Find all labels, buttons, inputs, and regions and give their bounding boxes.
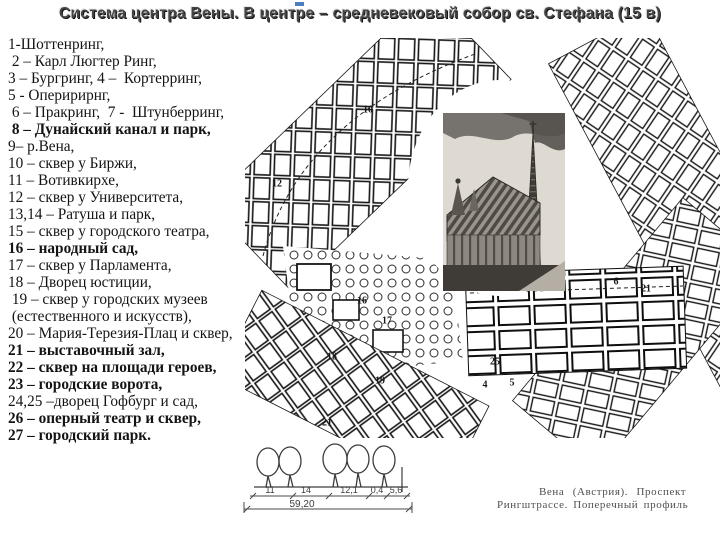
street-profile-diagram: 11 14 12,1 0,4 5,6 59,20 (230, 432, 475, 517)
legend-line: 12 – сквер у Университета, (8, 189, 233, 206)
legend-line: 11 – Вотивкирхе, (8, 172, 233, 189)
figure-caption: Вена (Австрия). Проспект Рингштрассе. По… (497, 486, 712, 512)
legend-line: 13,14 – Ратуша и парк, (8, 206, 233, 223)
legend-line: 3 – Бургринг, 4 – Кортерринг, (8, 70, 233, 87)
legend-line: 1-Шоттенринг, (8, 36, 233, 53)
slide-title: Система центра Вены. В центре – средневе… (0, 5, 720, 23)
legend-line: 17 – сквер у Парламента, (8, 257, 233, 274)
legend-line: 26 – оперный театр и сквер, (8, 410, 233, 427)
legend-line: 23 – городские ворота, (8, 376, 233, 393)
dimension-label: 5,6 (390, 485, 403, 495)
legend-line: 27 – городский парк. (8, 427, 233, 444)
blue-tick-mark (295, 2, 304, 6)
legend-line: 5 - Оперирирнг, (8, 87, 233, 104)
legend-line: 9– р.Вена, (8, 138, 233, 155)
tower-finial (455, 178, 460, 183)
legend-line: 6 – Пракринг, 7 - Штунберринг, (8, 104, 233, 121)
legend-line: 22 – сквер на площади героев, (8, 359, 233, 376)
cathedral-photo (443, 113, 565, 291)
dimension-label: 11 (265, 485, 274, 495)
legend-line: 20 – Мария-Терезия-Плац и сквер, (8, 325, 233, 342)
legend-line: 2 – Карл Люгтер Ринг, (8, 53, 233, 70)
dimension-label: 0,4 (371, 485, 384, 495)
dimension-label: 14 (301, 485, 311, 495)
profile-drawing: 11 14 12,1 0,4 5,6 59,20 (230, 432, 475, 517)
legend-line: 15 – сквер у городского театра, (8, 223, 233, 240)
slide: Система центра Вены. В центре – средневе… (0, 0, 720, 540)
legend-line: 24,25 –дворец Гофбург и сад, (8, 393, 233, 410)
profile-trees (257, 444, 395, 487)
legend-line: 10 – сквер у Биржи, (8, 155, 233, 172)
dimension-label: 12,1 (340, 485, 358, 495)
legend-line: 16 – народный сад, (8, 240, 233, 257)
total-dimension-label: 59,20 (289, 499, 314, 510)
cathedral-drawing (443, 113, 565, 291)
profile-dimension-line-2 (244, 502, 412, 513)
caption-line-2: Рингштрассе. Поперечный профиль (497, 499, 712, 512)
legend-line: 19 – сквер у городских музеев (8, 291, 233, 308)
legend-line: 18 – Дворец юстиции, (8, 274, 233, 291)
legend-line: 21 – выставочный зал, (8, 342, 233, 359)
legend-list: 1-Шоттенринг, 2 – Карл Люгтер Ринг,3 – Б… (8, 36, 233, 444)
caption-line-1: Вена (Австрия). Проспект (539, 486, 712, 499)
legend-line: 8 – Дунайский канал и парк, (8, 121, 233, 138)
legend-line: (естественного и искусств), (8, 308, 233, 325)
